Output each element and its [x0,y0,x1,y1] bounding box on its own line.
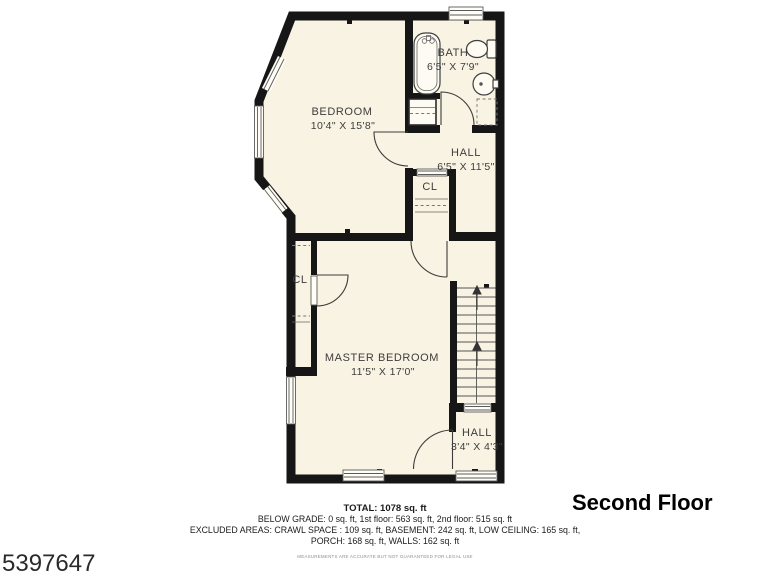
excluded-areas-line2: PORCH: 168 sq. ft, WALLS: 162 sq. ft [145,536,625,547]
room-dims-hall-lower: 3'4" X 4'3" [451,441,503,453]
floorplan-page: BEDROOM 10'4" X 15'8" BATH 6'5" X 7'9" H… [0,0,768,576]
room-label-master-bedroom: MASTER BEDROOM [325,352,439,364]
floor-title: Second Floor [572,490,713,516]
bedroom-left-window [255,106,264,158]
room-dims-bath: 6'5" X 7'9" [427,61,479,73]
grade-areas-line: BELOW GRADE: 0 sq. ft, 1st floor: 563 sq… [145,514,625,525]
room-dims-master-bedroom: 11'5" X 17'0" [351,366,415,378]
toilet-icon [487,40,496,58]
master-left-window [287,377,296,424]
hall-bottom-opening [456,471,497,481]
room-dims-hall-upper: 6'5" X 11'5" [437,161,495,173]
room-label-bedroom: BEDROOM [311,106,372,118]
room-label-closet-upper: CL [422,181,437,193]
master-bottom-window [343,470,384,481]
excluded-areas-line1: EXCLUDED AREAS: CRAWL SPACE : 109 sq. ft… [145,525,625,536]
listing-number: 5397647 [2,550,95,576]
stair-opening [464,404,491,412]
closet-left-jamb [311,276,317,305]
room-label-hall-lower: HALL [462,427,492,439]
room-dims-bedroom: 10'4" X 15'8" [311,120,376,132]
sink-icon [473,73,495,95]
area-summary: TOTAL: 1078 sq. ft BELOW GRADE: 0 sq. ft… [145,503,625,547]
bath-top-window [449,7,483,20]
floor-plan: BEDROOM 10'4" X 15'8" BATH 6'5" X 7'9" H… [0,0,768,490]
linen-closet [409,99,436,125]
total-area: TOTAL: 1078 sq. ft [145,503,625,514]
room-label-bath: BATH [438,47,469,59]
room-label-closet-left: CL [292,274,307,286]
room-label-hall-upper: HALL [451,147,481,159]
disclaimer-text: MEASUREMENTS ARE ACCURATE BUT NOT GUARAN… [185,554,585,559]
